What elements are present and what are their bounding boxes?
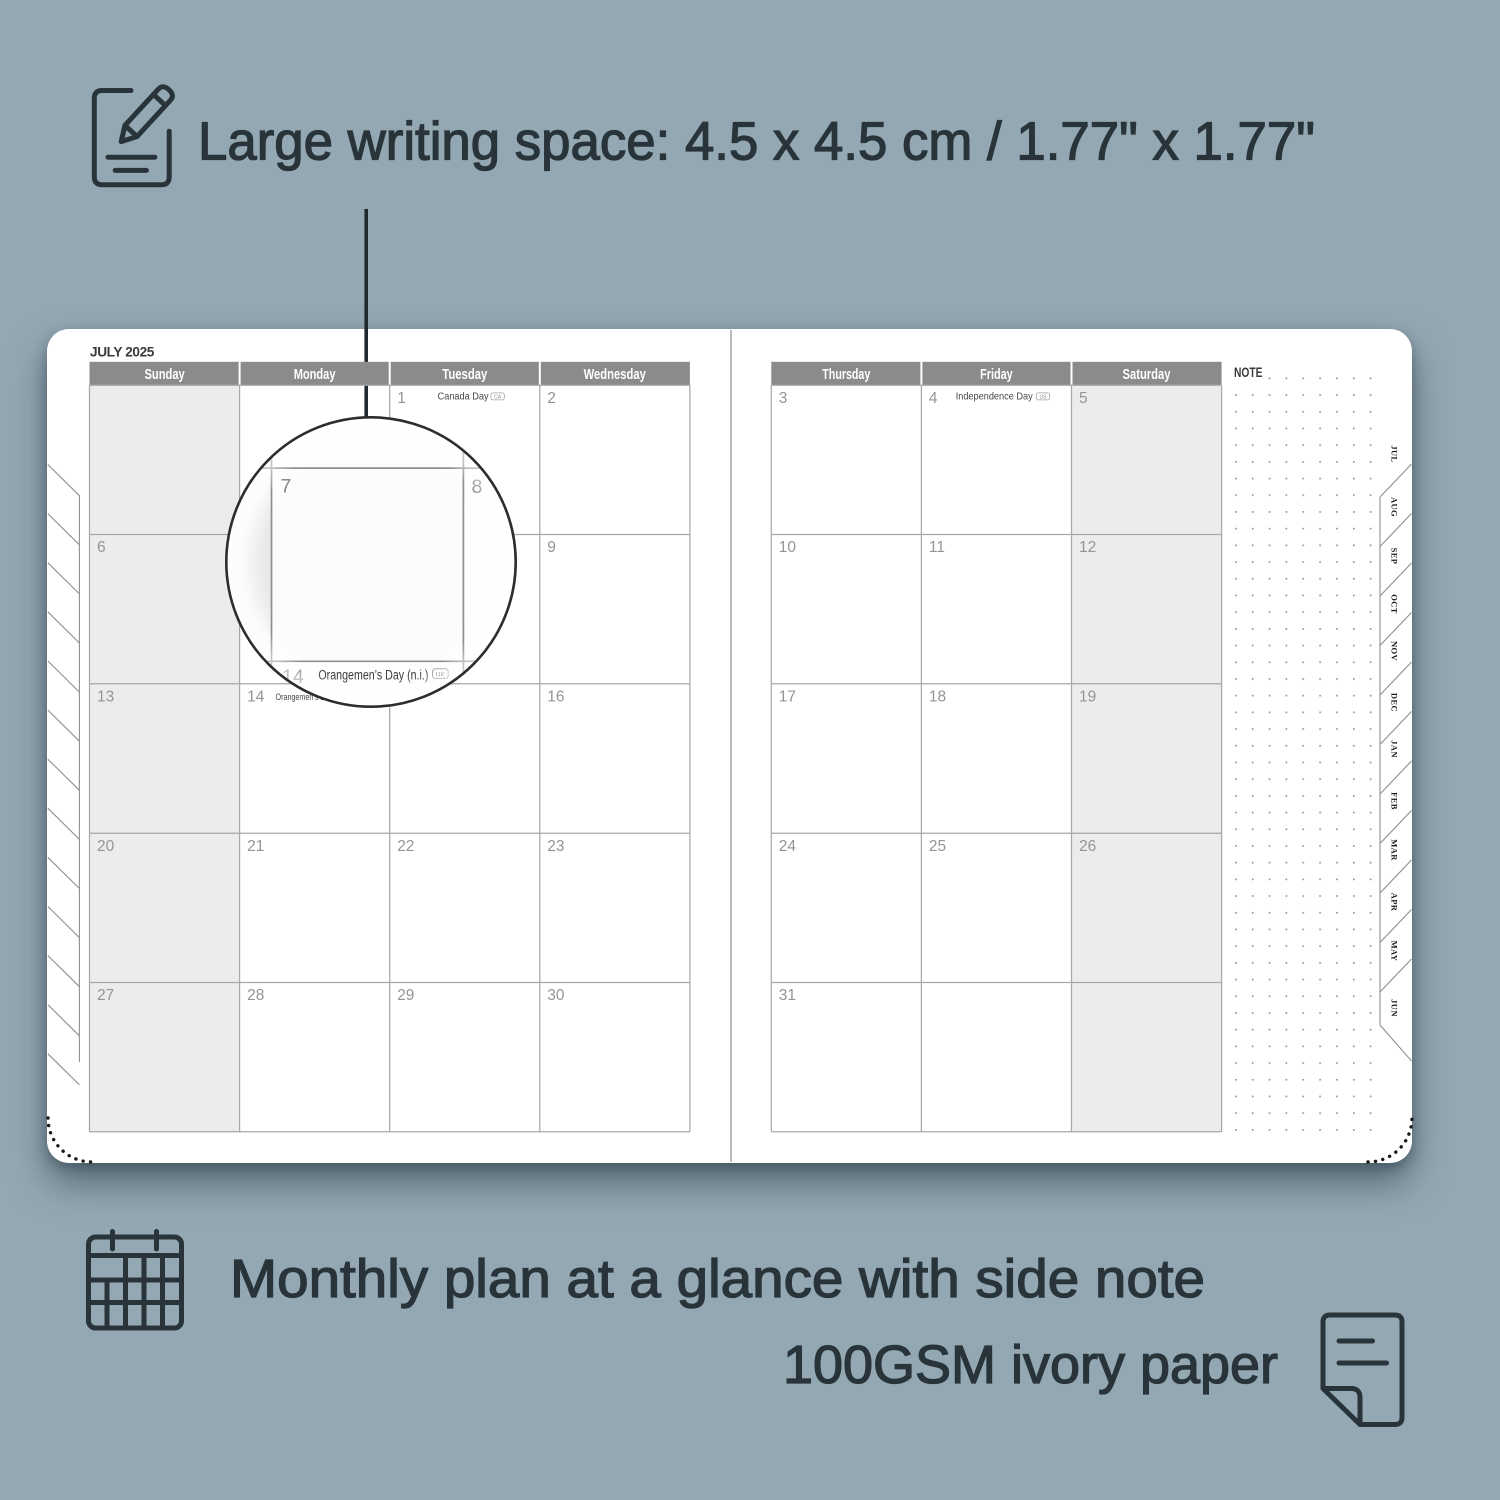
svg-text:Independence Day: Independence Day [956,392,1033,403]
svg-text:JAN: JAN [1390,740,1400,758]
svg-text:MAR: MAR [1390,839,1400,861]
svg-text:JUN: JUN [1390,999,1400,1017]
svg-text:6: 6 [97,539,106,556]
svg-text:29: 29 [397,987,414,1004]
svg-text:27: 27 [97,987,114,1004]
svg-text:AUG: AUG [1390,497,1400,517]
svg-text:14: 14 [247,688,265,705]
svg-text:31: 31 [779,987,796,1004]
svg-text:11: 11 [929,539,945,556]
svg-text:100GSM ivory paper: 100GSM ivory paper [783,1335,1278,1395]
svg-text:Wednesday: Wednesday [584,366,647,383]
svg-text:25: 25 [929,838,946,855]
svg-text:3: 3 [779,390,788,407]
svg-text:CA: CA [494,394,502,400]
svg-text:Saturday: Saturday [1123,366,1171,383]
svg-text:Thursday: Thursday [822,366,870,383]
svg-text:1: 1 [397,390,406,407]
svg-text:Sunday: Sunday [145,366,186,383]
svg-text:NOTE: NOTE [1234,365,1263,380]
svg-text:19: 19 [1079,688,1096,705]
svg-text:18: 18 [929,688,946,705]
svg-text:MAY: MAY [1390,941,1400,962]
svg-text:Large writing space: 4.5 x 4.5: Large writing space: 4.5 x 4.5 cm / 1.77… [198,112,1315,172]
svg-text:2: 2 [547,390,556,407]
svg-text:9: 9 [547,539,556,556]
svg-text:5: 5 [1079,390,1088,407]
svg-text:21: 21 [247,838,264,855]
svg-text:Friday: Friday [980,366,1013,383]
svg-text:APR: APR [1390,893,1400,912]
svg-text:DEC: DEC [1390,693,1400,712]
svg-text:23: 23 [547,838,564,855]
svg-text:FEB: FEB [1390,792,1400,810]
svg-text:26: 26 [1079,838,1096,855]
svg-text:28: 28 [247,987,264,1004]
svg-text:4: 4 [929,390,938,407]
svg-text:20: 20 [97,838,115,855]
svg-text:JULY 2025: JULY 2025 [90,344,155,360]
svg-text:30: 30 [547,987,565,1004]
svg-text:17: 17 [779,688,796,705]
svg-text:NOV: NOV [1390,641,1400,662]
svg-text:Tuesday: Tuesday [442,366,488,383]
svg-text:JUL: JUL [1390,445,1400,462]
svg-text:24: 24 [779,838,797,855]
svg-text:Monthly plan at a glance with: Monthly plan at a glance with side note [230,1249,1205,1309]
svg-text:13: 13 [97,688,114,705]
svg-text:US: US [1040,394,1048,400]
svg-text:12: 12 [1079,539,1096,556]
svg-text:16: 16 [547,688,564,705]
svg-text:22: 22 [397,838,414,855]
svg-text:10: 10 [779,539,797,556]
svg-text:OCT: OCT [1390,594,1400,614]
svg-text:Monday: Monday [294,366,336,383]
svg-text:Canada Day: Canada Day [438,392,489,403]
svg-text:SEP: SEP [1390,548,1400,565]
